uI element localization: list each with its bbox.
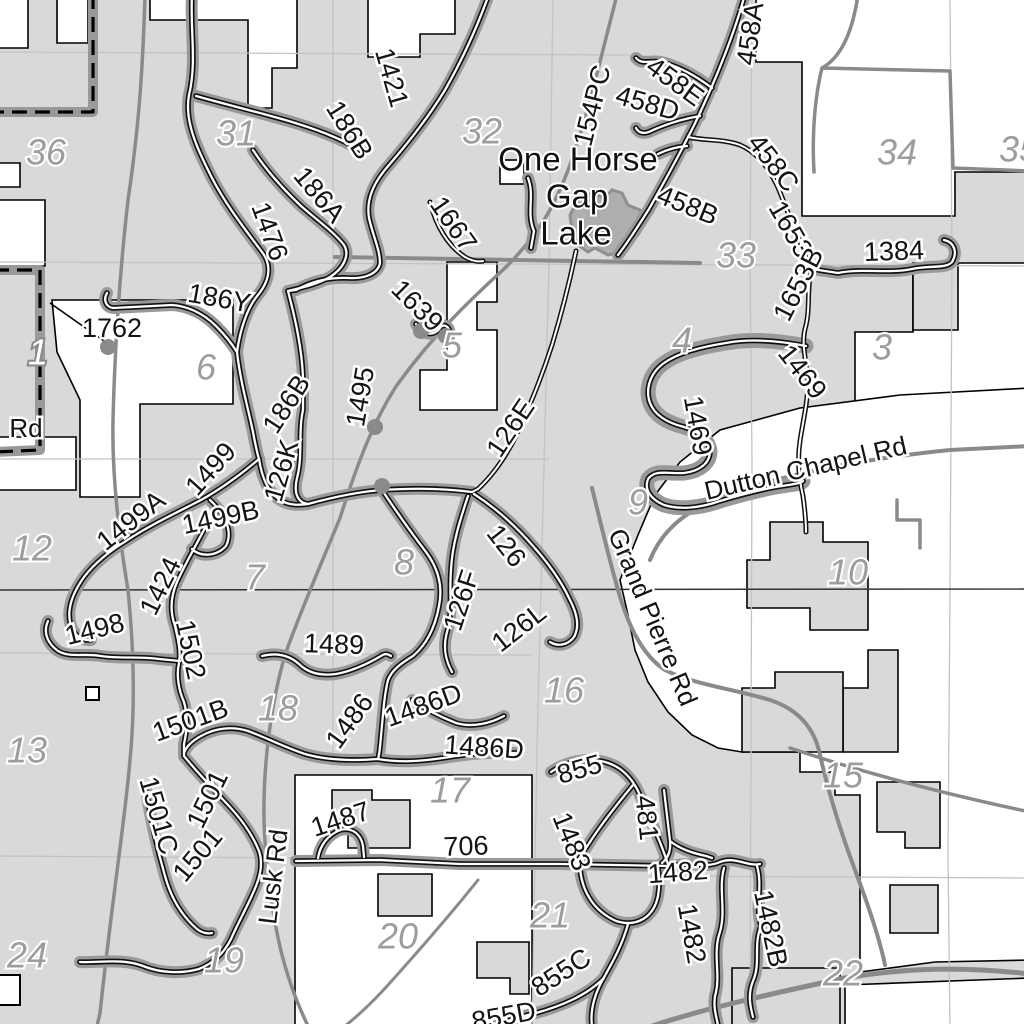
section-number-7: 7 bbox=[245, 557, 267, 598]
trail-label-706: 706 bbox=[443, 830, 489, 862]
section-number-12: 12 bbox=[12, 528, 52, 569]
map-canvas: 1421186B186A1476154PC458A458E458D458C458… bbox=[0, 0, 1024, 1024]
section-number-31: 31 bbox=[216, 113, 256, 154]
structure-symbol bbox=[0, 975, 20, 1005]
place-label-one-horse: One Horse bbox=[498, 141, 658, 178]
trail-label-1384: 1384 bbox=[863, 235, 924, 267]
section-number-36: 36 bbox=[26, 132, 67, 173]
section-number-13: 13 bbox=[7, 730, 47, 771]
section-number-4: 4 bbox=[672, 320, 692, 361]
section-number-18: 18 bbox=[258, 688, 298, 729]
section-number-32: 32 bbox=[462, 111, 502, 152]
section-number-15: 15 bbox=[823, 755, 864, 796]
map-viewport[interactable]: 1421186B186A1476154PC458A458E458D458C458… bbox=[0, 0, 1024, 1024]
section-number-6: 6 bbox=[196, 347, 217, 388]
trail-label-481: 481 bbox=[630, 794, 665, 842]
section-number-16: 16 bbox=[544, 670, 585, 711]
section-number-19: 19 bbox=[204, 940, 244, 981]
section-number-20: 20 bbox=[377, 916, 418, 957]
road-label-rd: Rd bbox=[9, 413, 42, 443]
place-label-lake: Lake bbox=[540, 215, 612, 252]
section-number-33: 33 bbox=[716, 235, 756, 276]
trail-label-1486d: 1486D bbox=[443, 729, 524, 764]
section-number-3: 3 bbox=[872, 327, 892, 368]
place-label-gap: Gap bbox=[546, 178, 608, 215]
trail-label-1489: 1489 bbox=[304, 628, 365, 660]
section-number-34: 34 bbox=[877, 132, 917, 173]
section-number-1: 1 bbox=[28, 332, 48, 373]
section-number-5: 5 bbox=[442, 325, 463, 366]
section-number-21: 21 bbox=[529, 895, 570, 936]
structure-symbol bbox=[86, 687, 99, 700]
section-number-9: 9 bbox=[628, 482, 648, 523]
section-number-8: 8 bbox=[394, 542, 414, 583]
gate-marker-icon bbox=[374, 478, 390, 494]
section-number-17: 17 bbox=[430, 770, 472, 811]
section-number-24: 24 bbox=[6, 935, 47, 976]
section-number-35: 35 bbox=[999, 129, 1024, 170]
trail-label-1482: 1482 bbox=[647, 855, 709, 889]
section-number-10: 10 bbox=[828, 552, 868, 593]
section-number-22: 22 bbox=[822, 953, 863, 994]
trail-label-1762: 1762 bbox=[82, 313, 142, 343]
